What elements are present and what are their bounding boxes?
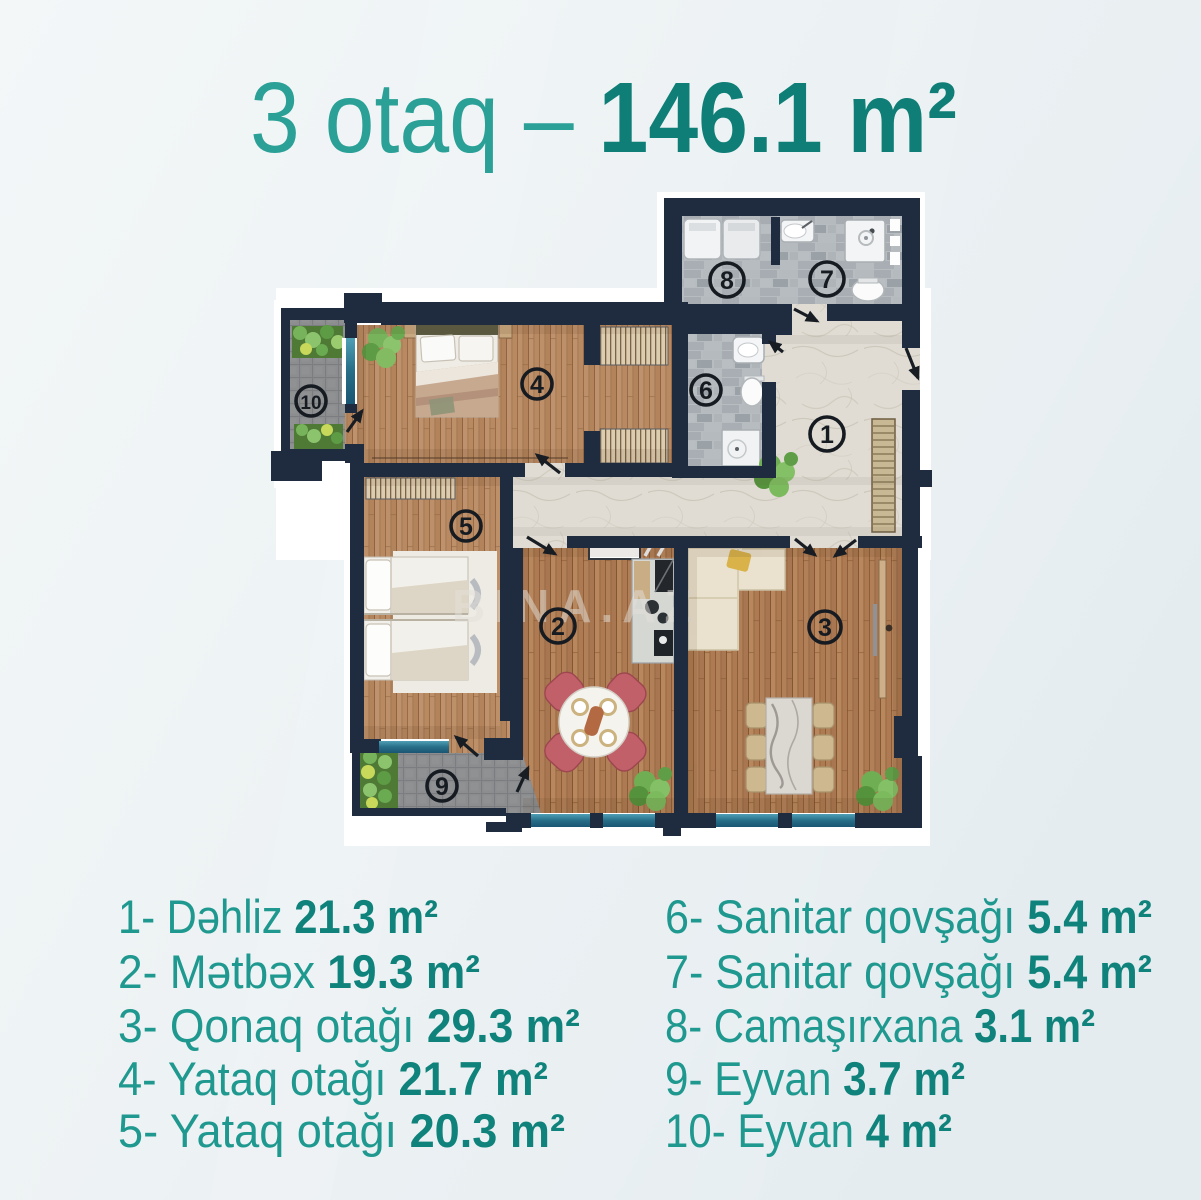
svg-text:1: 1	[820, 421, 834, 449]
svg-text:7- Sanitar qovşağı 5.4 m²: 7- Sanitar qovşağı 5.4 m²	[665, 945, 1152, 998]
svg-text:2- Mətbəx 19.3 m²: 2- Mətbəx 19.3 m²	[118, 945, 480, 998]
svg-text:8- Camaşırxana 3.1 m²: 8- Camaşırxana 3.1 m²	[665, 999, 1095, 1052]
svg-text:3 otaq – 146.1 m²: 3 otaq – 146.1 m²	[250, 62, 957, 174]
svg-text:BINA.AZ: BINA.AZ	[452, 580, 702, 632]
svg-text:4: 4	[530, 371, 544, 399]
svg-text:3: 3	[818, 614, 832, 642]
svg-text:4- Yataq otağı 21.7 m²: 4- Yataq otağı 21.7 m²	[118, 1052, 548, 1105]
svg-text:3- Qonaq otağı 29.3 m²: 3- Qonaq otağı 29.3 m²	[118, 999, 580, 1052]
svg-text:10: 10	[300, 393, 321, 414]
svg-text:6- Sanitar qovşağı 5.4 m²: 6- Sanitar qovşağı 5.4 m²	[665, 890, 1152, 943]
svg-text:10- Eyvan 4 m²: 10- Eyvan 4 m²	[665, 1104, 952, 1157]
svg-text:5: 5	[459, 513, 473, 541]
svg-text:8: 8	[720, 267, 734, 295]
svg-text:1- Dəhliz 21.3 m²: 1- Dəhliz 21.3 m²	[118, 890, 438, 943]
svg-text:6: 6	[699, 377, 713, 405]
svg-text:9- Eyvan 3.7 m²: 9- Eyvan 3.7 m²	[665, 1052, 965, 1105]
svg-text:7: 7	[820, 266, 834, 294]
svg-text:2: 2	[551, 613, 565, 641]
svg-text:5- Yataq otağı 20.3 m²: 5- Yataq otağı 20.3 m²	[118, 1104, 565, 1157]
svg-text:9: 9	[435, 773, 449, 801]
